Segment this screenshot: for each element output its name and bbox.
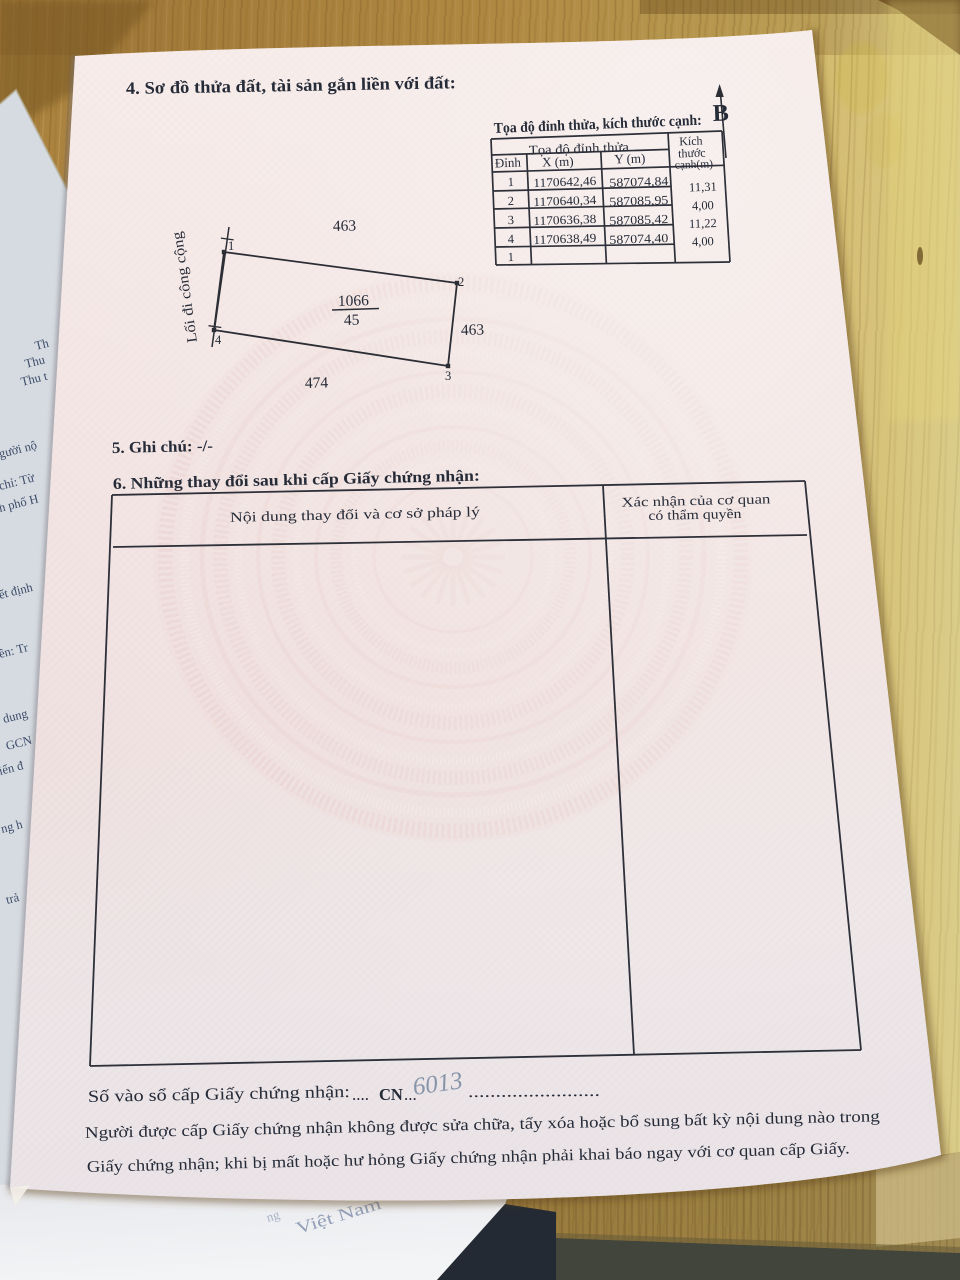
- svg-text:CN: CN: [379, 1085, 403, 1104]
- svg-text:11,31: 11,31: [689, 180, 717, 195]
- svg-text:587085,95: 587085,95: [609, 193, 668, 209]
- svg-text:X (m): X (m): [542, 153, 574, 169]
- svg-text:........................: ........................: [468, 1081, 600, 1101]
- svg-text:587074,84: 587074,84: [609, 174, 669, 190]
- svg-text:463: 463: [461, 321, 485, 339]
- svg-text:2: 2: [458, 275, 464, 289]
- svg-text:474: 474: [305, 374, 329, 392]
- svg-text:11,22: 11,22: [689, 216, 717, 231]
- svg-text:5. Ghi chú: -/-: 5. Ghi chú: -/-: [112, 438, 213, 457]
- svg-text:3: 3: [507, 213, 514, 227]
- svg-text:1: 1: [507, 250, 514, 264]
- svg-text:1170642,46: 1170642,46: [533, 174, 596, 190]
- svg-text:....: ....: [352, 1085, 369, 1104]
- svg-text:587085,42: 587085,42: [609, 212, 668, 228]
- svg-text:1170640,34: 1170640,34: [533, 193, 597, 209]
- svg-text:1170636,38: 1170636,38: [533, 212, 596, 228]
- svg-text:1: 1: [228, 239, 234, 253]
- svg-text:cạnh(m): cạnh(m): [675, 158, 714, 171]
- svg-text:4: 4: [215, 333, 222, 347]
- svg-text:B: B: [712, 100, 729, 127]
- svg-text:463: 463: [333, 217, 357, 235]
- svg-text:45: 45: [344, 312, 360, 329]
- svg-text:587074,40: 587074,40: [609, 231, 668, 247]
- svg-text:Đỉnh: Đỉnh: [495, 155, 522, 171]
- svg-text:1: 1: [507, 175, 514, 189]
- svg-text:4,00: 4,00: [692, 234, 714, 249]
- svg-text:1066: 1066: [338, 292, 370, 310]
- svg-text:Y (m): Y (m): [614, 150, 645, 166]
- svg-text:4,00: 4,00: [692, 198, 714, 213]
- svg-text:1170638,49: 1170638,49: [533, 231, 596, 247]
- svg-text:2: 2: [507, 194, 514, 208]
- svg-text:có thẩm quyền: có thẩm quyền: [648, 506, 742, 523]
- svg-text:3: 3: [445, 369, 451, 383]
